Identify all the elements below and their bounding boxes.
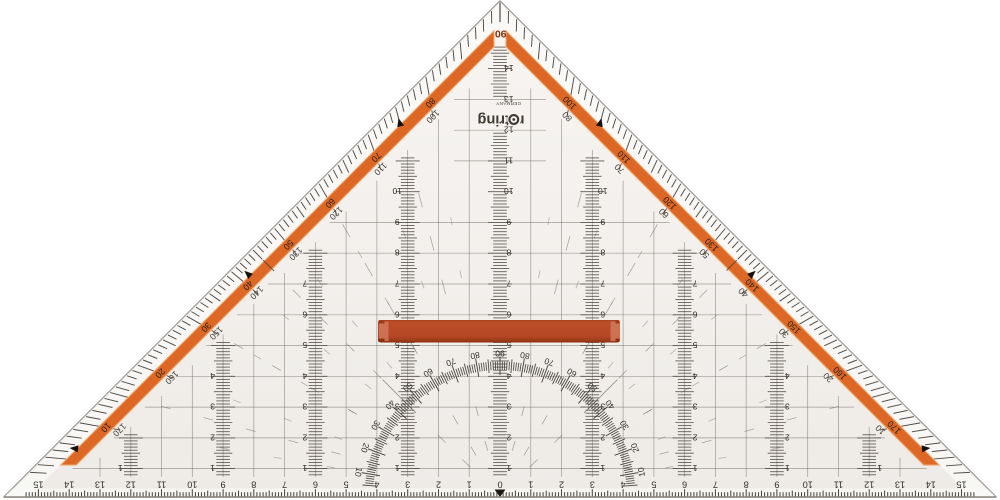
svg-text:14: 14 bbox=[926, 479, 936, 489]
svg-text:1: 1 bbox=[506, 463, 511, 473]
svg-text:9: 9 bbox=[395, 217, 400, 227]
svg-text:10: 10 bbox=[504, 186, 514, 196]
svg-text:2: 2 bbox=[600, 432, 605, 442]
svg-text:4: 4 bbox=[621, 479, 626, 489]
svg-text:4: 4 bbox=[374, 479, 379, 489]
svg-text:3: 3 bbox=[506, 402, 511, 412]
svg-text:1: 1 bbox=[528, 479, 533, 489]
svg-text:2: 2 bbox=[302, 432, 307, 442]
svg-text:8: 8 bbox=[395, 248, 400, 258]
svg-text:5: 5 bbox=[344, 479, 349, 489]
svg-text:7: 7 bbox=[282, 479, 287, 489]
svg-text:15: 15 bbox=[956, 479, 966, 489]
svg-text:3: 3 bbox=[405, 479, 410, 489]
svg-text:9: 9 bbox=[600, 217, 605, 227]
svg-text:12: 12 bbox=[126, 479, 136, 489]
svg-text:2: 2 bbox=[506, 432, 511, 442]
svg-text:8: 8 bbox=[600, 248, 605, 258]
svg-text:3: 3 bbox=[302, 402, 307, 412]
svg-text:9: 9 bbox=[774, 479, 779, 489]
svg-text:2: 2 bbox=[692, 432, 697, 442]
svg-text:6: 6 bbox=[506, 309, 511, 319]
svg-text:GERMANY: GERMANY bbox=[496, 101, 521, 106]
svg-text:8: 8 bbox=[251, 479, 256, 489]
svg-text:4: 4 bbox=[395, 371, 400, 381]
svg-text:6: 6 bbox=[600, 309, 605, 319]
svg-text:10: 10 bbox=[187, 479, 197, 489]
svg-text:2: 2 bbox=[210, 432, 215, 442]
svg-text:5: 5 bbox=[692, 340, 697, 350]
svg-text:1: 1 bbox=[395, 463, 400, 473]
svg-text:10: 10 bbox=[803, 479, 813, 489]
svg-text:15: 15 bbox=[33, 479, 43, 489]
svg-text:13: 13 bbox=[895, 479, 905, 489]
svg-text:8: 8 bbox=[744, 479, 749, 489]
svg-text:5: 5 bbox=[651, 479, 656, 489]
svg-text:8: 8 bbox=[506, 248, 511, 258]
svg-text:80: 80 bbox=[469, 350, 480, 362]
svg-text:7: 7 bbox=[395, 279, 400, 289]
svg-text:90: 90 bbox=[495, 349, 505, 359]
svg-text:12: 12 bbox=[864, 479, 874, 489]
svg-text:6: 6 bbox=[395, 309, 400, 319]
svg-text:4: 4 bbox=[210, 371, 215, 381]
svg-text:90: 90 bbox=[495, 28, 507, 40]
svg-text:1: 1 bbox=[210, 463, 215, 473]
svg-text:3: 3 bbox=[785, 402, 790, 412]
svg-text:1: 1 bbox=[785, 463, 790, 473]
svg-text:4: 4 bbox=[785, 371, 790, 381]
svg-text:13: 13 bbox=[95, 479, 105, 489]
svg-text:4: 4 bbox=[600, 371, 605, 381]
svg-text:1: 1 bbox=[600, 463, 605, 473]
svg-text:2: 2 bbox=[785, 432, 790, 442]
svg-text:1: 1 bbox=[467, 479, 472, 489]
svg-text:4: 4 bbox=[506, 371, 511, 381]
svg-text:4: 4 bbox=[302, 371, 307, 381]
svg-text:10: 10 bbox=[598, 186, 608, 196]
svg-text:2: 2 bbox=[395, 432, 400, 442]
svg-text:3: 3 bbox=[210, 402, 215, 412]
svg-text:10: 10 bbox=[392, 186, 402, 196]
svg-text:3: 3 bbox=[590, 479, 595, 489]
svg-text:7: 7 bbox=[506, 279, 511, 289]
svg-text:6: 6 bbox=[692, 309, 697, 319]
svg-text:4: 4 bbox=[692, 371, 697, 381]
svg-text:1: 1 bbox=[692, 463, 697, 473]
svg-text:11: 11 bbox=[157, 479, 167, 489]
svg-text:7: 7 bbox=[600, 279, 605, 289]
svg-text:6: 6 bbox=[313, 479, 318, 489]
svg-text:7: 7 bbox=[692, 279, 697, 289]
svg-text:11: 11 bbox=[504, 155, 513, 165]
svg-text:0: 0 bbox=[497, 479, 502, 489]
svg-text:10: 10 bbox=[353, 467, 365, 478]
svg-text:5: 5 bbox=[302, 340, 307, 350]
svg-text:1: 1 bbox=[302, 463, 307, 473]
svg-text:9: 9 bbox=[506, 217, 511, 227]
svg-text:7: 7 bbox=[713, 479, 718, 489]
svg-text:9: 9 bbox=[221, 479, 226, 489]
svg-text:3: 3 bbox=[692, 402, 697, 412]
svg-text:80: 80 bbox=[519, 350, 530, 362]
svg-text:2: 2 bbox=[436, 479, 441, 489]
svg-text:6: 6 bbox=[682, 479, 687, 489]
svg-text:2: 2 bbox=[559, 479, 564, 489]
svg-text:10: 10 bbox=[636, 466, 648, 477]
svg-text:14: 14 bbox=[504, 63, 514, 73]
svg-text:1: 1 bbox=[118, 463, 123, 473]
svg-text:7: 7 bbox=[302, 279, 307, 289]
svg-text:6: 6 bbox=[302, 309, 307, 319]
svg-text:1: 1 bbox=[877, 463, 882, 473]
svg-text:14: 14 bbox=[64, 479, 74, 489]
svg-text:11: 11 bbox=[834, 479, 844, 489]
